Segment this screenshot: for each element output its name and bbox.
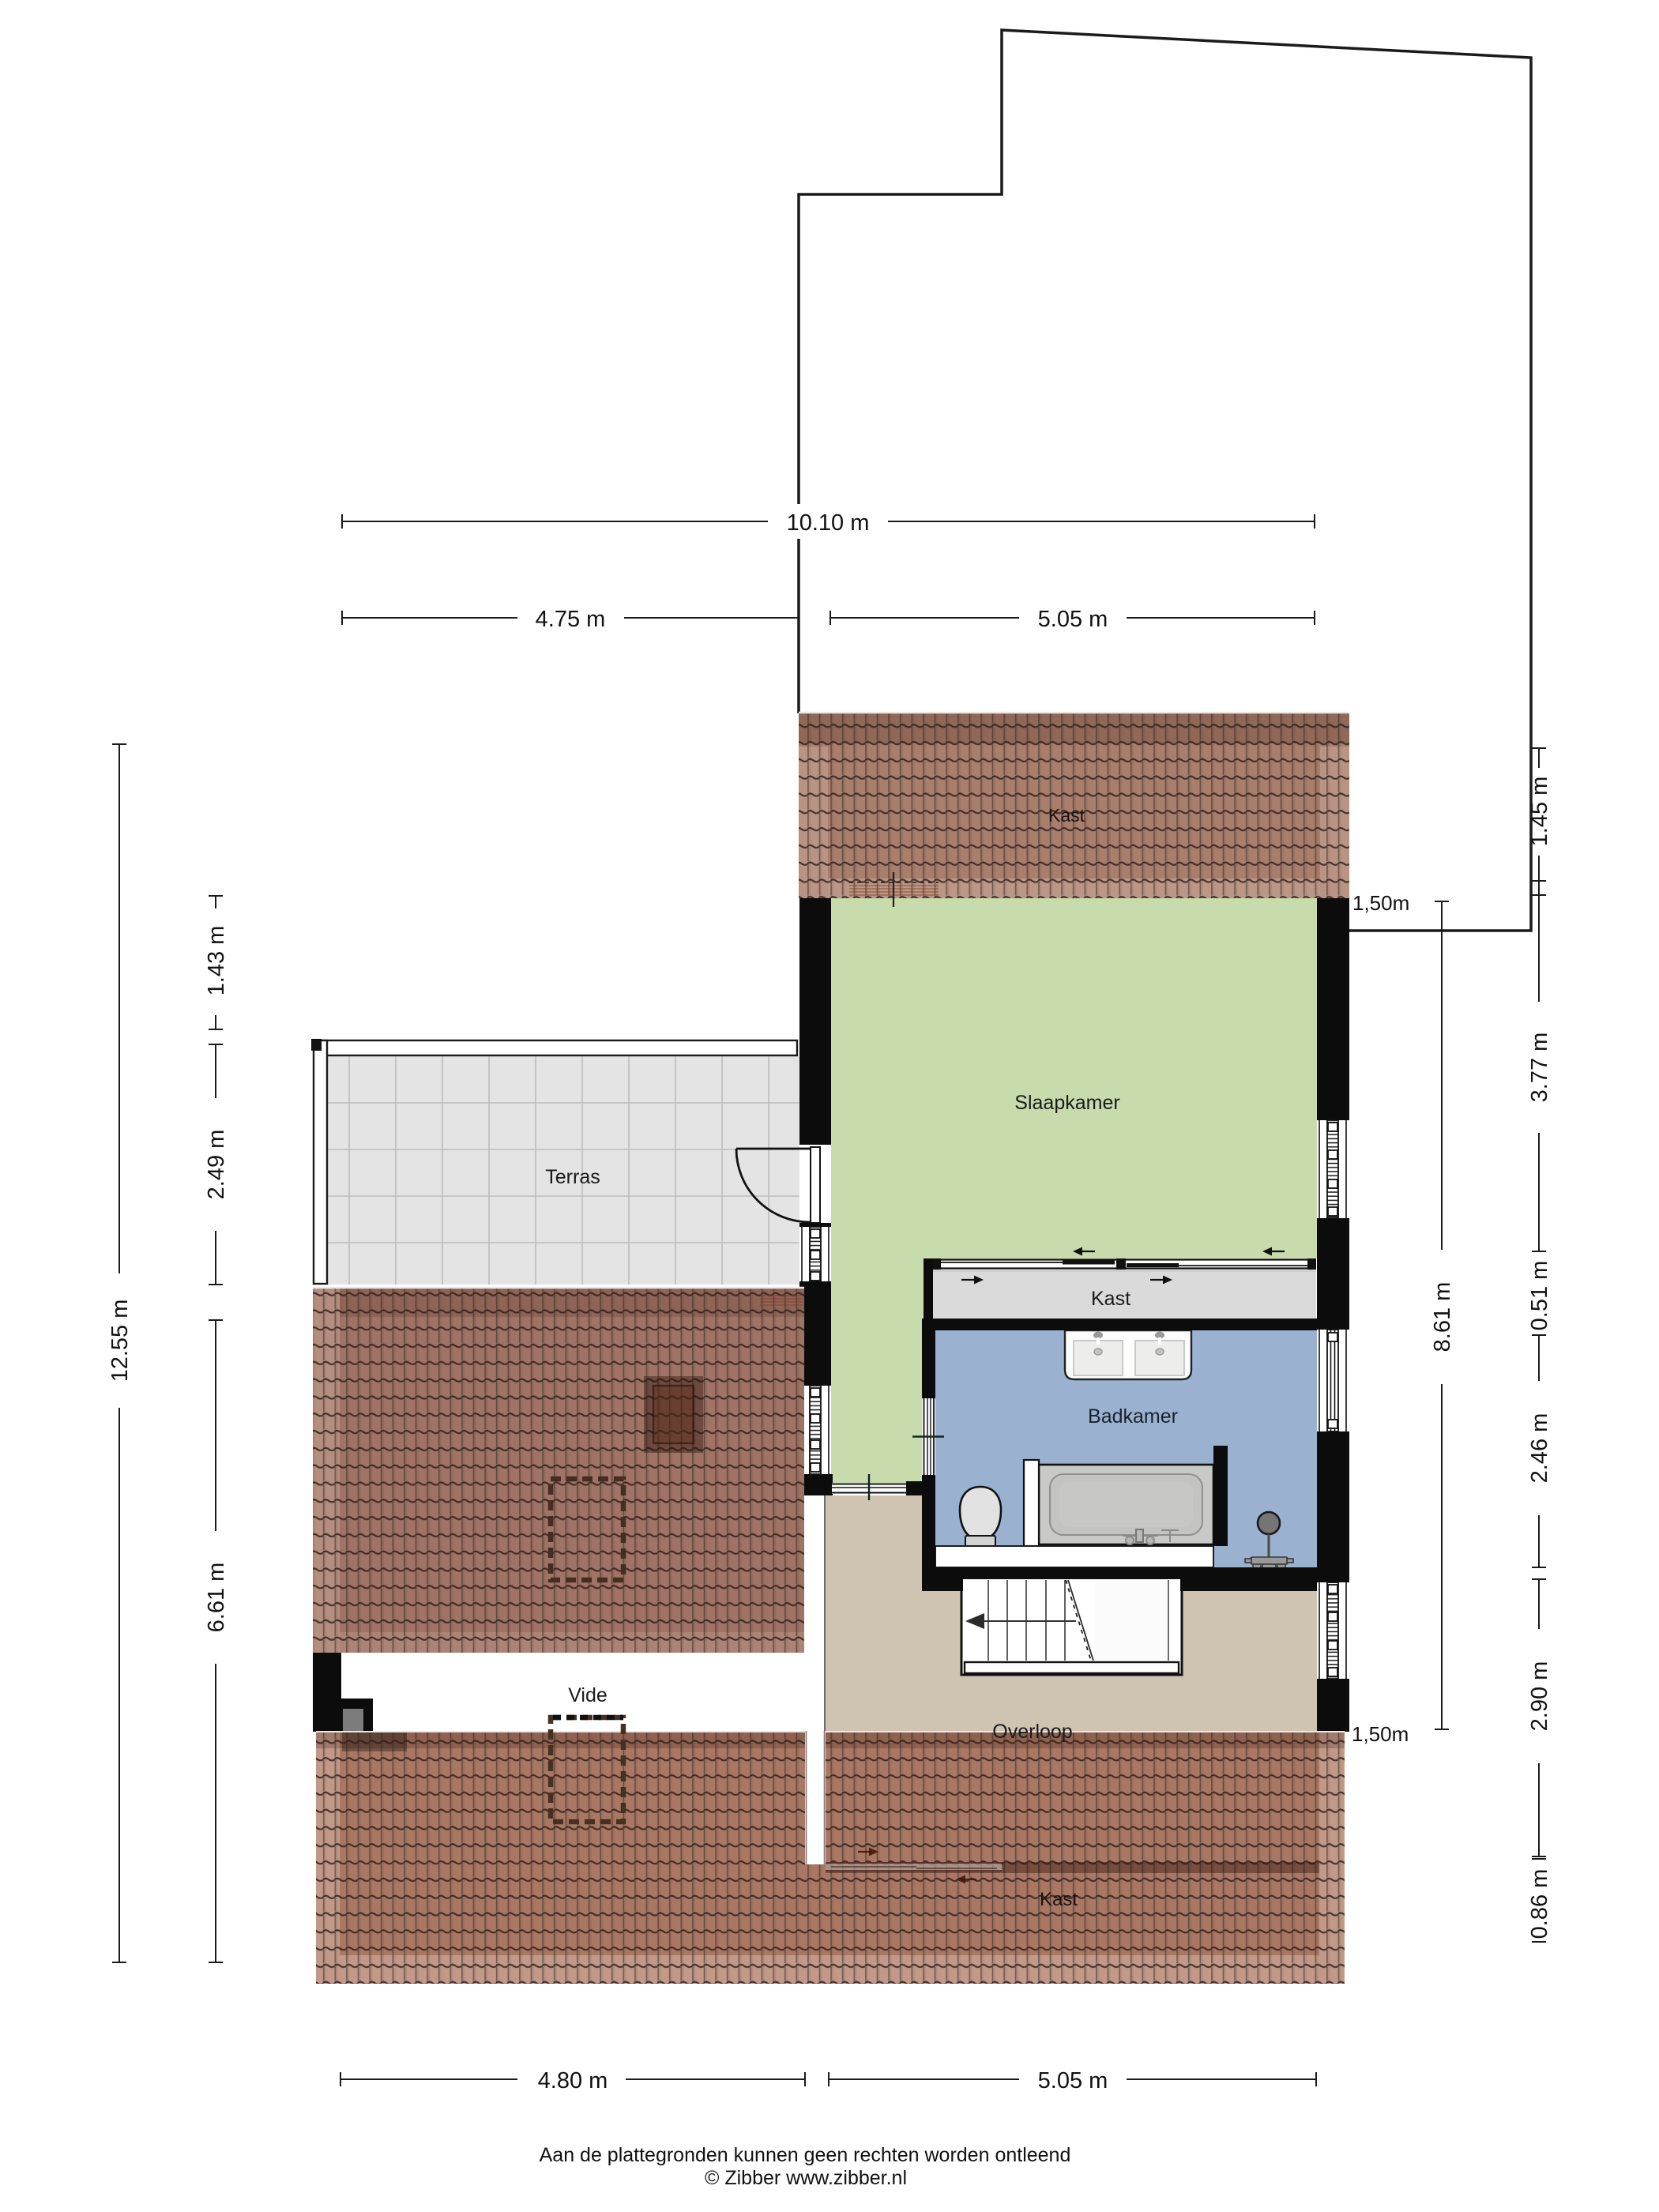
- svg-text:Badkamer: Badkamer: [1088, 1405, 1178, 1428]
- svg-text:5.05 m: 5.05 m: [1038, 607, 1108, 632]
- svg-text:1,50m: 1,50m: [1352, 1722, 1409, 1746]
- svg-text:Kast: Kast: [1091, 1288, 1130, 1310]
- svg-text:2.49 m: 2.49 m: [204, 1130, 229, 1200]
- svg-text:2.90 m: 2.90 m: [1527, 1661, 1552, 1732]
- svg-text:4.75 m: 4.75 m: [536, 607, 606, 632]
- svg-text:2.46 m: 2.46 m: [1527, 1413, 1552, 1484]
- svg-text:Vide: Vide: [568, 1684, 608, 1706]
- svg-text:4.80 m: 4.80 m: [538, 2068, 608, 2093]
- svg-text:5.05 m: 5.05 m: [1038, 2068, 1108, 2093]
- svg-text:Terras: Terras: [545, 1166, 600, 1188]
- svg-text:© Zibber www.zibber.nl: © Zibber www.zibber.nl: [705, 2167, 907, 2189]
- svg-text:1.43 m: 1.43 m: [204, 926, 229, 996]
- svg-text:Aan de plattegronden kunnen ge: Aan de plattegronden kunnen geen rechten…: [540, 2144, 1071, 2166]
- svg-text:1.45 m: 1.45 m: [1527, 777, 1552, 847]
- svg-text:Overloop: Overloop: [992, 1721, 1072, 1743]
- svg-text:Slaapkamer: Slaapkamer: [1014, 1092, 1119, 1114]
- svg-text:0.51 m: 0.51 m: [1527, 1261, 1552, 1331]
- svg-text:3.77 m: 3.77 m: [1527, 1033, 1552, 1103]
- svg-text:0.86 m: 0.86 m: [1527, 1869, 1552, 1939]
- svg-text:6.61 m: 6.61 m: [204, 1563, 229, 1633]
- svg-text:8.61 m: 8.61 m: [1430, 1282, 1455, 1352]
- svg-text:12.55 m: 12.55 m: [107, 1300, 133, 1382]
- svg-text:1,50m: 1,50m: [1352, 891, 1409, 915]
- svg-text:Kast: Kast: [1040, 1889, 1078, 1910]
- svg-text:Kast: Kast: [1048, 805, 1085, 826]
- svg-text:10.10 m: 10.10 m: [787, 510, 870, 536]
